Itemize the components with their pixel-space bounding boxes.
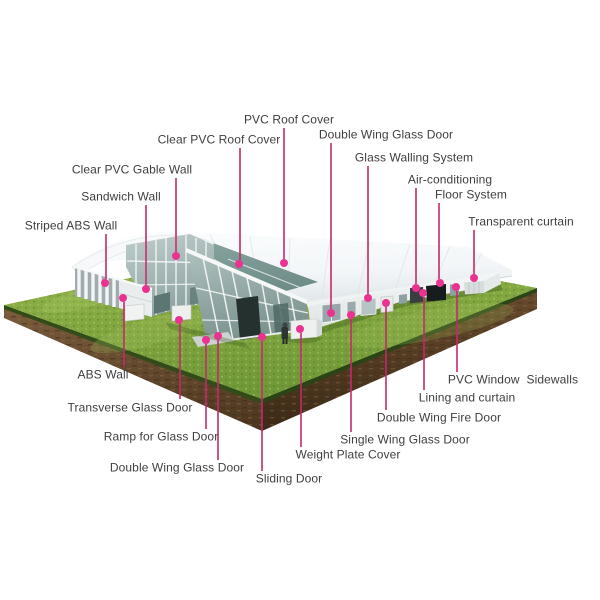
callout-dot-double-wing-glass-door-right: [327, 309, 335, 317]
callout-dot-double-wing-glass-door-front: [214, 332, 222, 340]
callout-dot-sliding-door: [258, 333, 266, 341]
callout-dot-transparent-curtain: [470, 274, 478, 282]
callout-dot-sandwich-wall: [142, 285, 150, 293]
callout-layer: [0, 0, 600, 600]
callout-dot-abs-wall: [119, 294, 127, 302]
callout-dot-double-wing-fire-door: [382, 299, 390, 307]
callout-dot-striped-abs-wall: [101, 279, 109, 287]
callout-dot-ramp-for-glass-door: [202, 336, 210, 344]
callout-dot-floor-system: [436, 279, 444, 287]
callout-dot-transverse-glass-door: [175, 316, 183, 324]
callout-dot-clear-pvc-roof-cover: [235, 260, 243, 268]
callout-dot-glass-walling-system: [364, 294, 372, 302]
callout-dot-clear-pvc-gable-wall: [172, 252, 180, 260]
callout-dot-single-wing-glass-door: [347, 311, 355, 319]
callout-dot-lining-and-curtain: [419, 289, 427, 297]
callout-dot-pvc-roof-cover: [280, 259, 288, 267]
product-diagram: PVC Roof CoverClear PVC Roof CoverDouble…: [0, 0, 600, 600]
callout-dot-pvc-window-sidewalls: [452, 283, 460, 291]
callout-dot-weight-plate-cover: [296, 325, 304, 333]
callout-dot-air-conditioning: [412, 284, 420, 292]
